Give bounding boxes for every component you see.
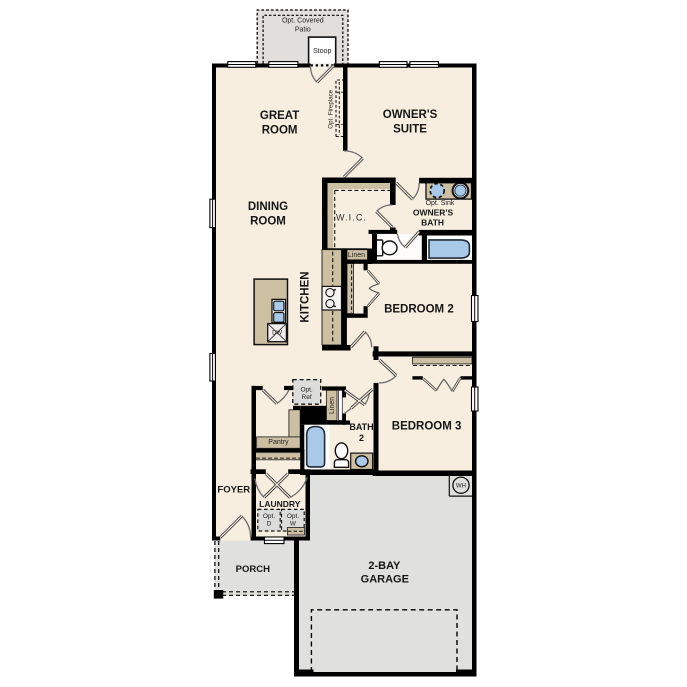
- svg-text:Linen: Linen: [348, 252, 365, 259]
- svg-text:OWNER'S: OWNER'S: [383, 109, 438, 121]
- svg-text:KITCHEN: KITCHEN: [300, 271, 312, 322]
- svg-text:PORCH: PORCH: [236, 564, 270, 575]
- svg-text:2-BAY: 2-BAY: [368, 560, 401, 572]
- svg-text:FOYER: FOYER: [217, 485, 250, 496]
- svg-text:GREAT: GREAT: [260, 110, 299, 122]
- svg-text:2: 2: [359, 433, 364, 443]
- svg-text:W: W: [290, 521, 297, 528]
- svg-text:BEDROOM 3: BEDROOM 3: [392, 420, 462, 432]
- svg-text:Opt. Covered: Opt. Covered: [282, 18, 324, 25]
- svg-text:Opt.: Opt.: [287, 513, 299, 520]
- svg-text:Opt. Sink: Opt. Sink: [426, 200, 455, 207]
- svg-text:WH: WH: [456, 483, 466, 489]
- svg-text:Opt. Fireplace: Opt. Fireplace: [327, 89, 334, 128]
- svg-text:DINING: DINING: [248, 201, 288, 213]
- svg-text:ROOM: ROOM: [262, 125, 298, 137]
- svg-text:ROOM: ROOM: [250, 215, 286, 227]
- svg-text:Opt.: Opt.: [300, 387, 312, 394]
- svg-text:Patio: Patio: [295, 27, 311, 34]
- svg-text:Stoop: Stoop: [313, 48, 331, 55]
- svg-text:D: D: [267, 521, 272, 528]
- svg-text:GARAGE: GARAGE: [361, 573, 409, 585]
- svg-text:BATH: BATH: [349, 422, 373, 432]
- svg-text:Opt.: Opt.: [263, 513, 275, 520]
- svg-text:Pantry: Pantry: [268, 439, 289, 446]
- svg-text:DW: DW: [272, 331, 282, 337]
- svg-text:Linen: Linen: [329, 397, 336, 414]
- svg-text:Ref: Ref: [302, 394, 312, 401]
- svg-text:LAUNDRY: LAUNDRY: [259, 499, 301, 509]
- svg-text:BEDROOM 2: BEDROOM 2: [384, 303, 454, 315]
- svg-text:W.I.C.: W.I.C.: [336, 213, 367, 223]
- svg-text:OWNER'S: OWNER'S: [413, 208, 454, 218]
- svg-text:SUITE: SUITE: [393, 124, 427, 136]
- svg-text:BATH: BATH: [421, 217, 444, 227]
